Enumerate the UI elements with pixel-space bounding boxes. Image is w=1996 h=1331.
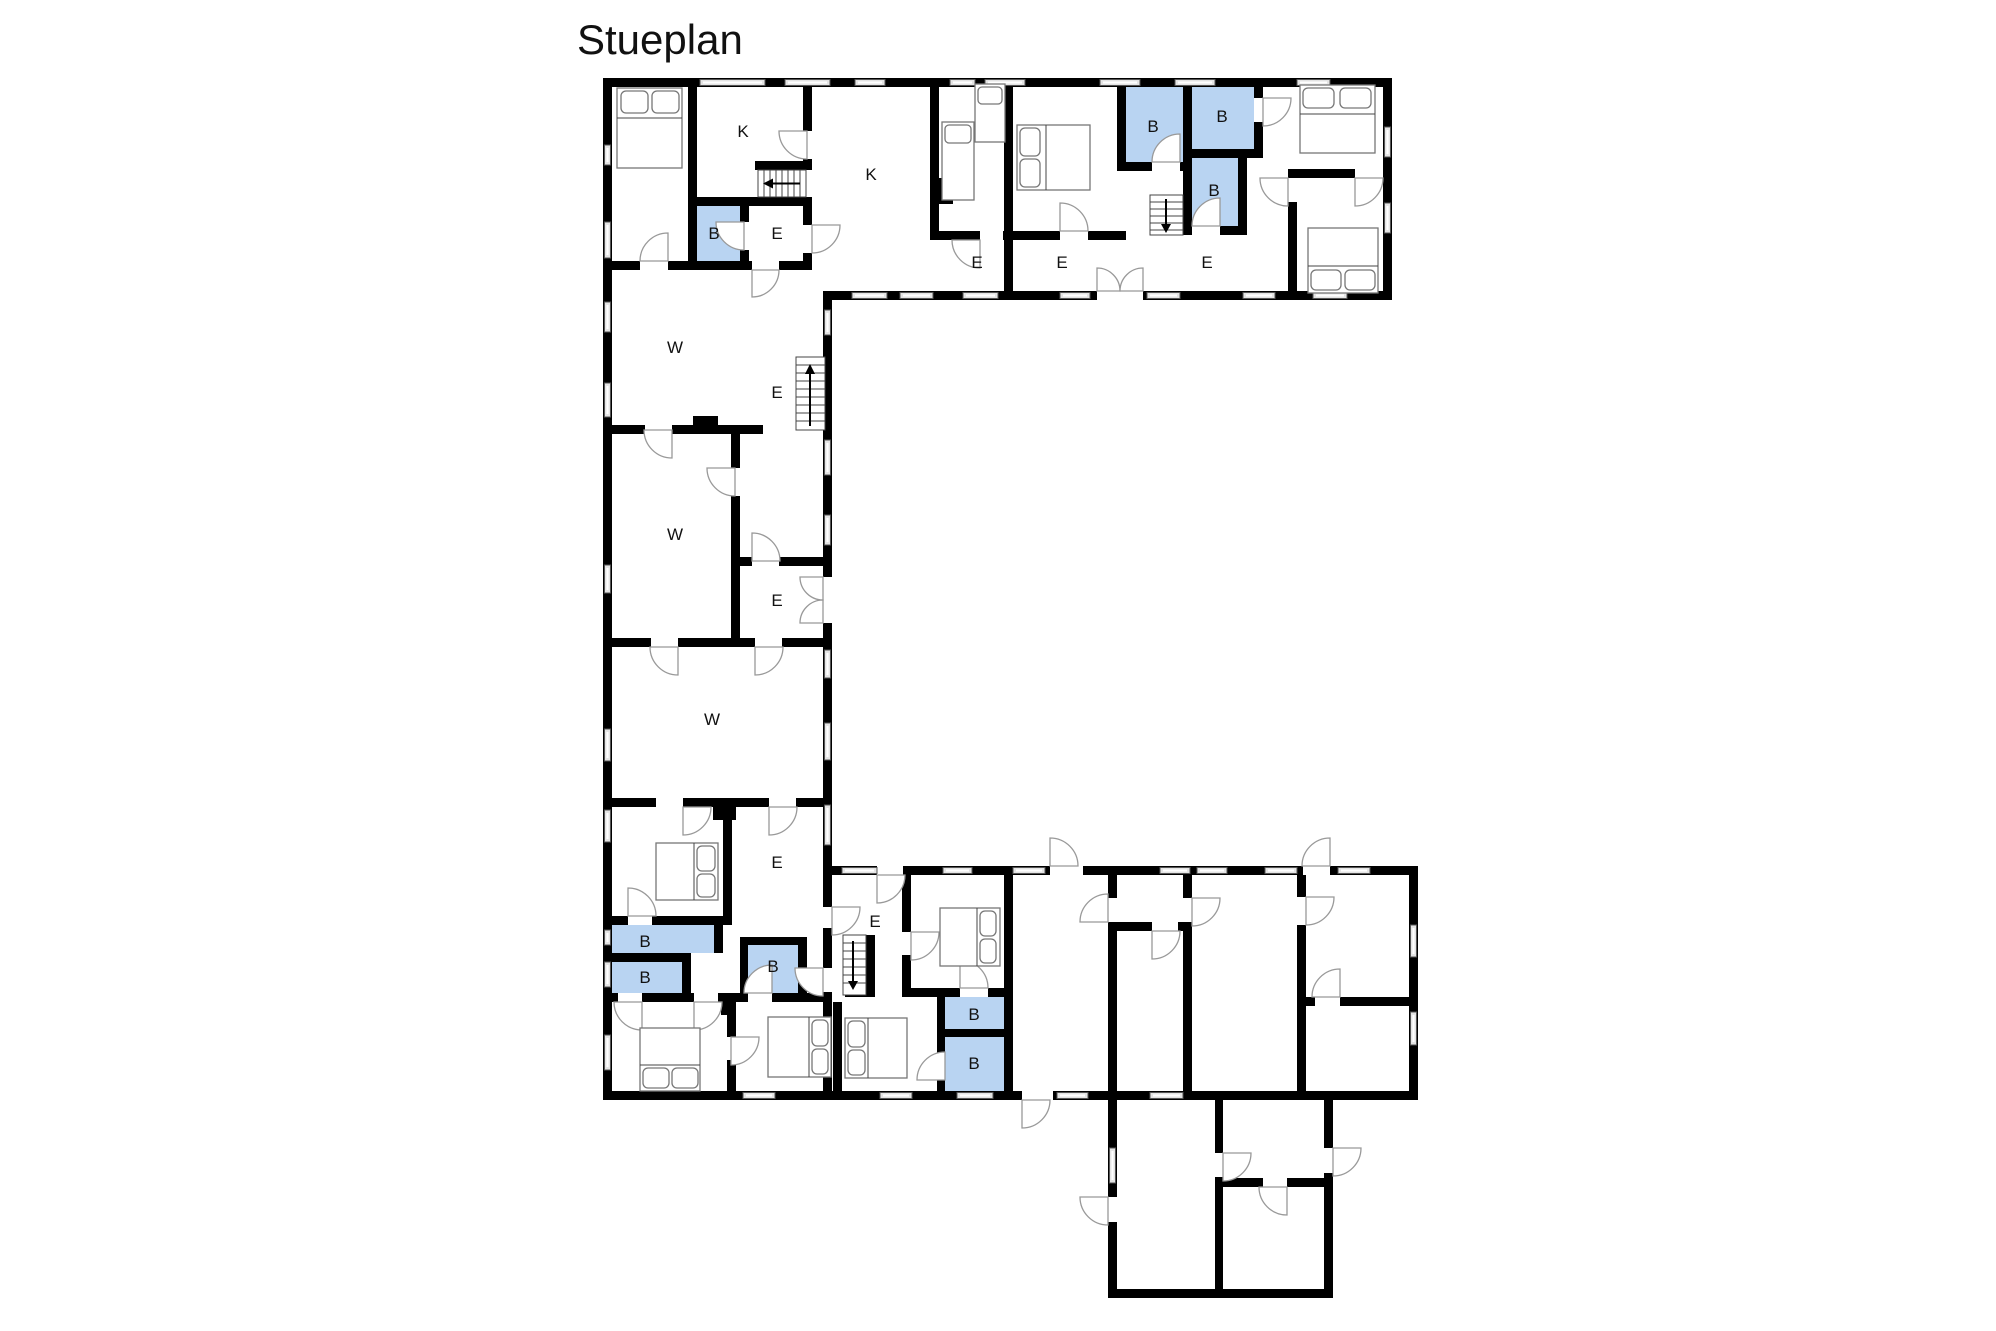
door-arc	[644, 430, 672, 458]
bed	[942, 122, 974, 200]
walls-layer	[603, 78, 1418, 1298]
door-arc	[1263, 98, 1291, 126]
door-arc	[707, 468, 735, 496]
door-arc	[1260, 178, 1288, 206]
door-arc	[614, 1002, 642, 1030]
room-label: E	[971, 253, 982, 272]
bed	[1017, 125, 1090, 190]
double-door	[800, 577, 823, 623]
door-arc	[650, 647, 678, 675]
floorplan: Stueplan	[0, 0, 1996, 1331]
door-arc	[694, 1002, 722, 1030]
exterior-door-arc	[1302, 838, 1330, 866]
door-arc	[752, 270, 779, 297]
room-label: B	[1208, 181, 1219, 200]
door-arc	[812, 225, 840, 253]
room-label: E	[771, 224, 782, 243]
room-label: E	[771, 853, 782, 872]
door-arc	[1080, 894, 1108, 922]
room-label: B	[639, 932, 650, 951]
bed	[768, 1017, 831, 1077]
bed	[656, 843, 718, 900]
bed	[617, 88, 682, 168]
door-arc	[769, 807, 797, 835]
chimney-block	[721, 993, 736, 1015]
room-label: K	[865, 165, 877, 184]
bed	[845, 1018, 907, 1078]
door-arc	[628, 888, 656, 916]
stair-side-wall	[866, 935, 875, 995]
door-arc	[917, 1052, 945, 1080]
bed	[975, 84, 1005, 142]
room-label: B	[767, 957, 778, 976]
exterior-door-arc	[1022, 1100, 1050, 1128]
room-label: B	[639, 968, 650, 987]
door-arc	[683, 807, 711, 835]
exterior-door-arc	[1050, 838, 1078, 866]
room-label: E	[1201, 253, 1212, 272]
exterior-door-arc	[877, 875, 905, 903]
double-door	[1097, 268, 1143, 291]
staircase	[843, 935, 866, 995]
door-arc	[1259, 1187, 1287, 1215]
room-label: B	[1216, 107, 1227, 126]
bed	[640, 1028, 700, 1091]
room-label: E	[771, 591, 782, 610]
room-label: W	[667, 338, 683, 357]
door-arc	[911, 932, 939, 960]
bed	[1308, 228, 1378, 293]
exterior-door-arc	[1080, 1197, 1108, 1225]
door-arc	[1192, 898, 1220, 926]
exterior-door-arc	[1333, 1148, 1361, 1176]
chimney-block	[713, 798, 736, 820]
door-arc	[731, 1037, 759, 1065]
chimney-block	[693, 416, 718, 427]
door-arc	[1223, 1153, 1251, 1181]
door-arc	[640, 233, 668, 261]
room-label: E	[771, 383, 782, 402]
door-arc	[752, 533, 780, 561]
door-arc	[1152, 931, 1180, 959]
room-label: B	[968, 1054, 979, 1073]
staircase	[796, 357, 825, 430]
room-label: W	[704, 710, 720, 729]
room-label: W	[667, 525, 683, 544]
room-label: B	[708, 224, 719, 243]
room-label: B	[968, 1005, 979, 1024]
room-label: B	[1147, 117, 1158, 136]
room-label: E	[1056, 253, 1067, 272]
door-arc	[1312, 969, 1340, 997]
bed	[1300, 85, 1375, 153]
door-arc	[779, 131, 807, 159]
staircase	[758, 170, 806, 197]
door-arc	[1060, 203, 1088, 231]
door-arc	[1355, 178, 1383, 206]
door-arc	[832, 907, 860, 935]
page-title: Stueplan	[577, 16, 743, 63]
door-arc	[1306, 897, 1334, 925]
floorplan-page: Stueplan	[0, 0, 1996, 1331]
bed	[940, 908, 1000, 966]
staircase	[1150, 195, 1183, 235]
room-label: E	[869, 912, 880, 931]
room-label: K	[737, 122, 749, 141]
door-arc	[755, 647, 783, 675]
